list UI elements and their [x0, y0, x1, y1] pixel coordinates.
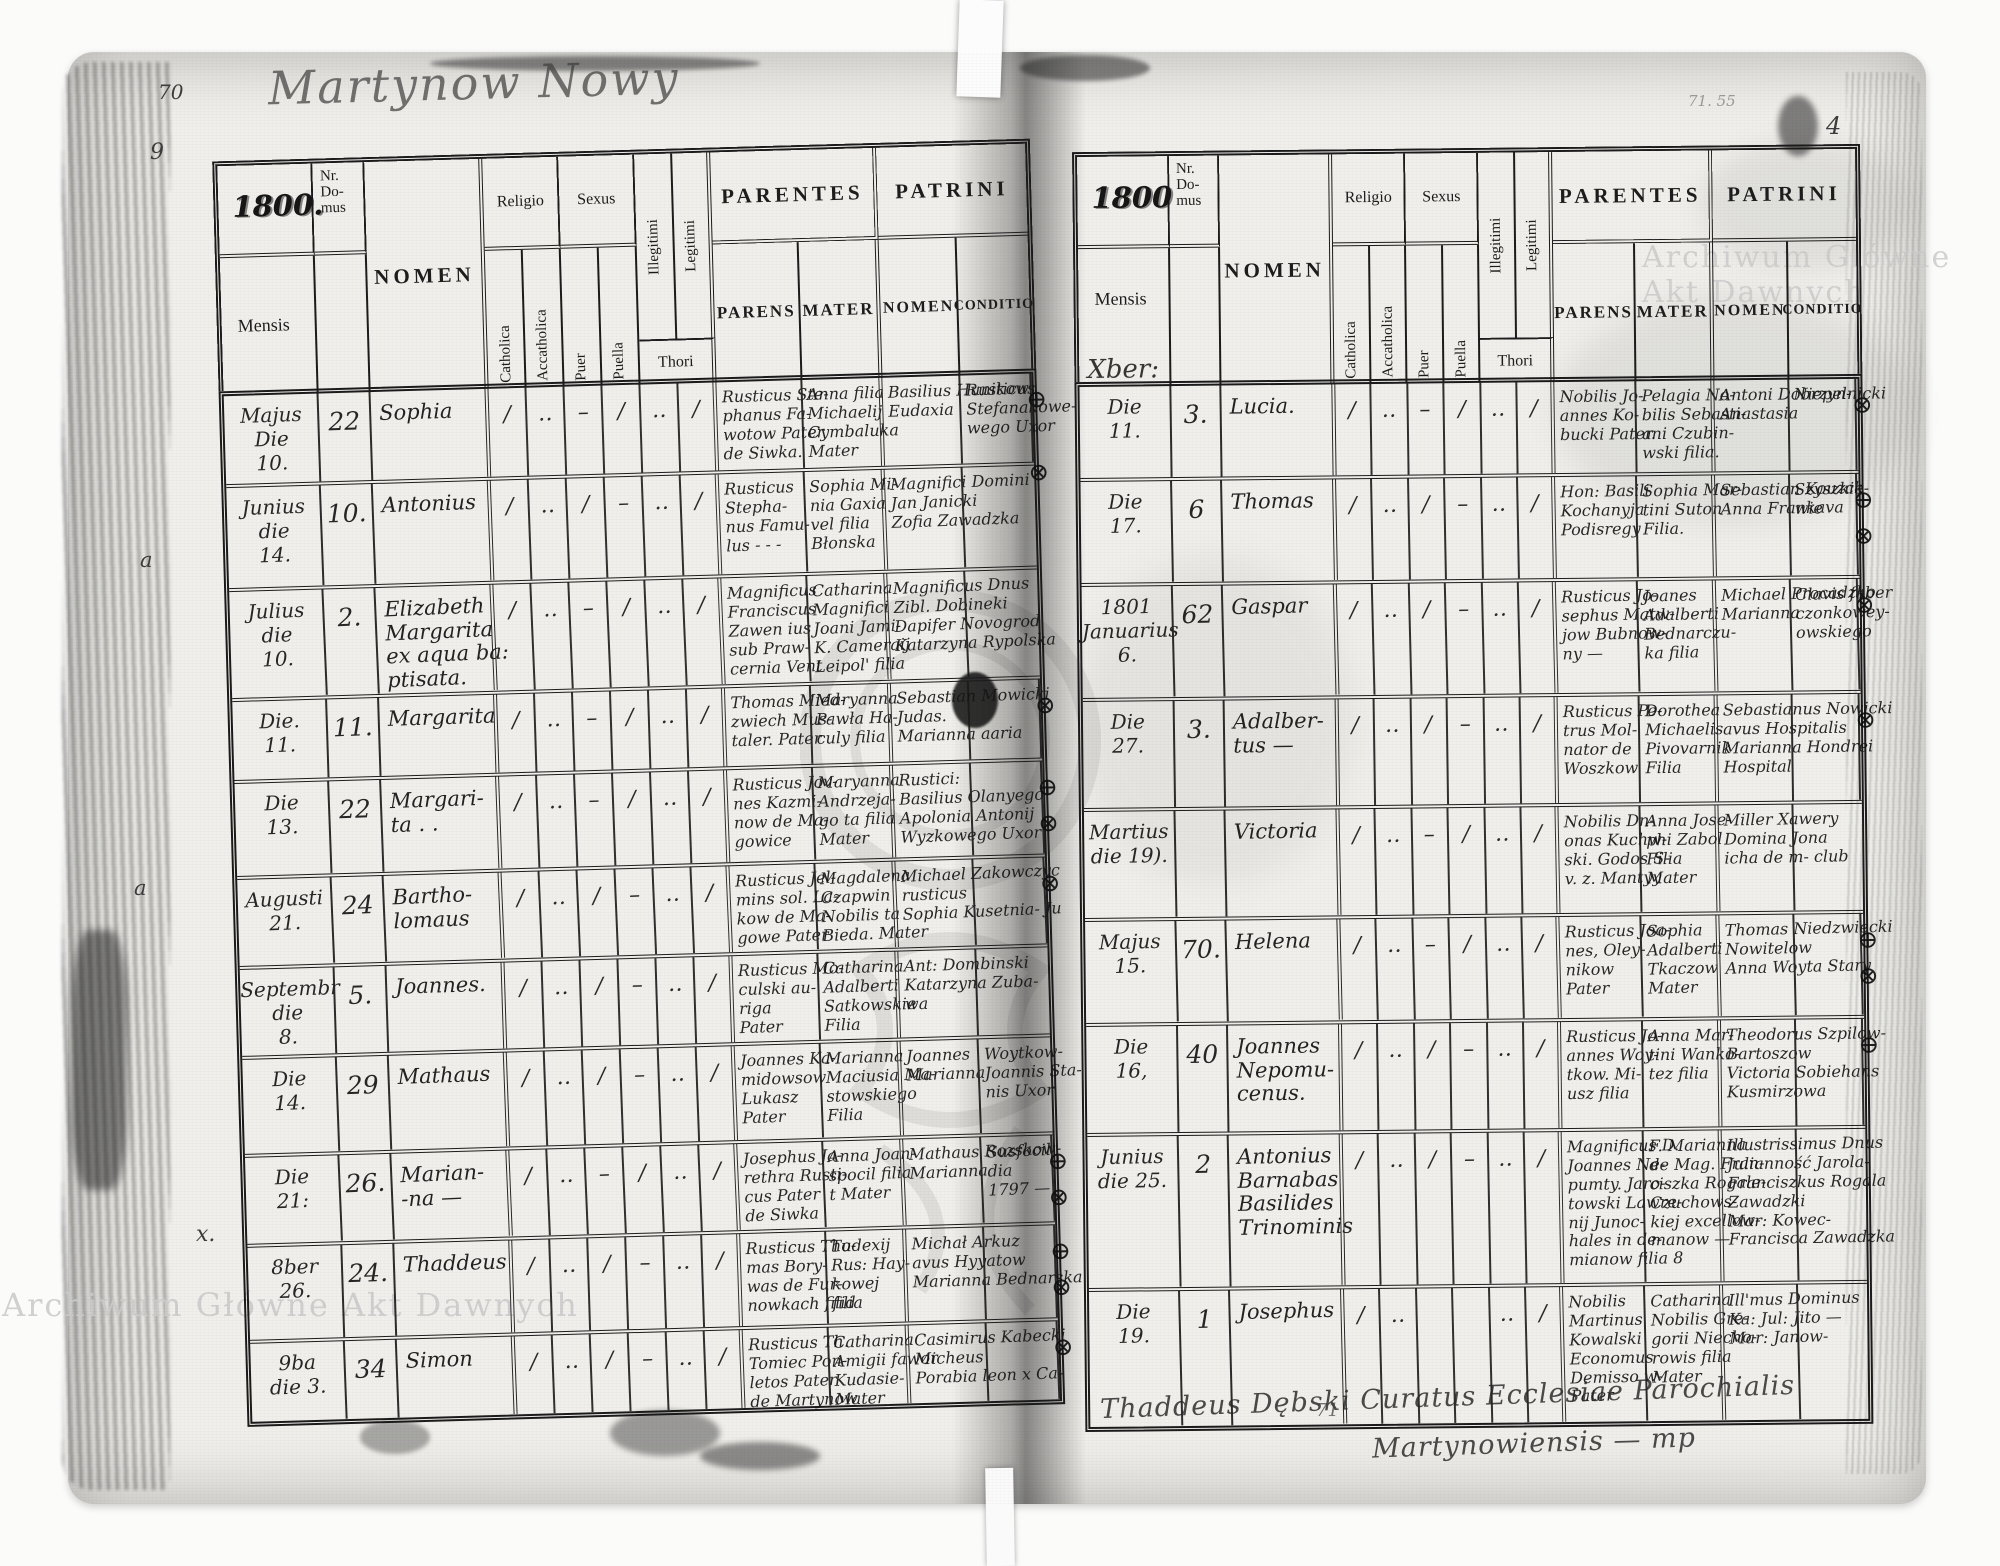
cell-mensis: Die 17. — [1080, 481, 1174, 584]
cell-mark-illegitimi: ‥ — [1486, 917, 1525, 1019]
cell-mark-accatholica: ‥ — [1374, 699, 1412, 806]
patrini-cell: PATRINI — [876, 144, 1027, 240]
cell-conditio: Niepelnicki — [1789, 379, 1859, 471]
cell-mensis: Die 13. — [234, 781, 333, 876]
cell-mark-puella: ∕ — [1444, 383, 1482, 475]
register-row: Die 17.6Thomas∕‥∕–‥∕Hon: Basili Kochanyj… — [1080, 474, 1859, 587]
patrini-label: PATRINI — [1727, 181, 1841, 207]
puer-label: Puer — [573, 352, 591, 380]
cell-nomen: Antonius Barnabas Basilides Trinominis — [1228, 1134, 1344, 1287]
patrini-nomen-cell: NOMEN — [1713, 242, 1789, 381]
cell-parens: Rusticus Jel- mins sol. La- kow de Ma- g… — [729, 863, 818, 953]
cell-parens: Rusticus Pe- trus Mol- nator de Woszkow — [1557, 696, 1641, 803]
cell-conditio — [986, 1321, 1060, 1402]
illegitimi-label: Illegitimi — [645, 218, 664, 274]
cell-mark-catholica: ∕ — [493, 583, 535, 690]
cell-mark-catholica: ∕ — [499, 775, 540, 868]
year-cell: 1800 — [1077, 156, 1170, 249]
illegitimi-cell: Illegitimi — [1478, 152, 1516, 337]
cell-nr-domus: 6 — [1172, 480, 1224, 582]
cell-mark-illegitimi: ‥ — [651, 771, 692, 864]
cell-mater: Joanes Adalberti Bednarczu- ka filia — [1638, 580, 1718, 693]
puella-cell: Puella — [1443, 245, 1481, 383]
puella-cell: Puella — [599, 247, 641, 386]
cell-mark-catholica: ∕ — [507, 1051, 548, 1146]
parens-label: PARENS — [717, 301, 796, 323]
puella-label: Puella — [1453, 339, 1470, 377]
cell-nr-domus: 29 — [337, 1056, 392, 1152]
cell-conditio — [973, 857, 1048, 946]
cell-mark-catholica: ∕ — [488, 388, 529, 477]
cell-nomen: Marian- -na — — [391, 1150, 512, 1241]
cell-mark-puer: ∕ — [1415, 1133, 1454, 1285]
cell-patrini-nomen: Sebastian Kouzck Anna Frankava — [1715, 474, 1792, 576]
cell-conditio — [1797, 1283, 1869, 1420]
sexus-label: Sexus — [577, 190, 616, 209]
cell-mark-puella: – — [615, 868, 657, 956]
accatholica-label: Accatholica — [1379, 306, 1397, 378]
cell-parens: Magnificus Franciscus Zawen ius sub Praw… — [721, 575, 811, 684]
nr-domus-label: Nr. Do- mus — [313, 162, 364, 217]
legitimi-label: Legitimi — [682, 219, 700, 271]
cell-mensis: Augusti 21. — [237, 877, 336, 967]
accatholica-label: Accatholica — [534, 309, 553, 381]
cell-nr-domus: 3. — [1174, 700, 1225, 807]
register-row: Die 16,40Joannes Nepomu- cenus.∕‥∕–‥∕Rus… — [1086, 1019, 1865, 1137]
cell-mark-accatholica: ‥ — [529, 478, 571, 579]
cell-mark-legitimi: ∕ — [1518, 477, 1556, 579]
cell-mark-accatholica: ‥ — [1378, 1024, 1416, 1131]
cell-mater: Sophia Adalberti Tkaczow Mater — [1641, 915, 1721, 1018]
parentes-cell: PARENTES — [1552, 150, 1713, 244]
cell-mark-accatholica: ‥ — [553, 1334, 594, 1413]
thori-cell: Thori — [639, 337, 716, 384]
cell-patrini-nomen: Magnificus Dnus Zibl. Dobineki Dapifer N… — [887, 571, 969, 680]
cell-mark-illegitimi: ‥ — [1485, 807, 1524, 914]
cell-mark-legitimi: ∕ — [1524, 1022, 1562, 1129]
cell-mensis: Die 16, — [1086, 1026, 1179, 1133]
puer-cell: Puer — [1406, 245, 1444, 383]
page-title-handwritten: Martynow Nowy — [267, 51, 680, 116]
cell-parens: Nobilis Dn- onas Kuchw- ski. Godos S- v.… — [1558, 806, 1642, 914]
thori-cell: Thori — [1480, 337, 1554, 383]
cell-patrini-nomen: Ant: Dombinski Katarzyna Zuba- wa — [899, 949, 979, 1037]
mater-label: MATER — [802, 299, 875, 321]
cell-parens: Rusticus Th. Tomiec Pon- letos Pater de … — [742, 1327, 830, 1408]
cell-mark-puella: – — [1451, 1023, 1489, 1130]
baptism-cross-mark: ⊗ — [1854, 587, 1875, 623]
baptism-cross-mark: ⊕ ⊗ — [1853, 482, 1875, 555]
mensis-cell: Mensis — [220, 256, 319, 397]
puella-label: Puella — [611, 341, 629, 379]
parens-label: PARENS — [1554, 302, 1633, 323]
cell-conditio: Susfocil dia 1797 — — [981, 1135, 1056, 1224]
cell-mark-puer: ∕ — [1409, 583, 1448, 695]
cell-parens: Rusticus Stepha- nus Famu- lus - - - — [718, 472, 807, 575]
cell-parens: Rusticus Jov- nes Kazmi- now de Ma- gowi… — [727, 768, 816, 863]
cell-mark-puer: – — [1413, 918, 1452, 1020]
cell-conditio — [984, 1225, 1058, 1319]
cell-mark-puella: ∕ — [1449, 918, 1488, 1020]
cell-mark-accatholica: ‥ — [545, 1050, 586, 1145]
patrini-nomen-cell: NOMEN — [879, 238, 960, 378]
left-page-register-table: 1800. Mensis Nr. Do- mus NOMEN Religio C… — [212, 139, 1065, 1427]
cell-mark-puella: ∕ — [602, 384, 643, 473]
cell-mark-puer: ∕ — [591, 1333, 632, 1412]
cell-mark-puer: ∕ — [1414, 1023, 1452, 1130]
cell-nr-domus: 40 — [1178, 1025, 1229, 1132]
nr-domus-label: Nr. Do- mus — [1169, 156, 1217, 210]
cell-patrini-nomen: Michał Arkuz avus Hyyatow Marianna Bedna… — [906, 1227, 986, 1321]
table-header: 1800. Mensis Nr. Do- mus NOMEN Religio C… — [212, 139, 1036, 392]
puer-cell: Puer — [561, 248, 603, 387]
cell-parens: Rusticus Jo- annes Woy- tkow. Mi- usz fi… — [1561, 1021, 1645, 1128]
cell-mark-illegitimi: ‥ — [661, 1145, 703, 1233]
register-row: Die 27.3.Adalber- tus —∕‥∕–‥∕Rusticus Pe… — [1083, 694, 1862, 812]
cell-patrini-nomen: Rustici: Basilius Olanyego Apolonia Anto… — [893, 763, 974, 858]
cell-nomen: Mathaus — [389, 1052, 510, 1150]
folio-number-right: 4 — [1826, 112, 1841, 140]
cell-mark-catholica: ∕ — [1342, 1134, 1381, 1286]
nomen-cell: NOMEN — [1219, 154, 1335, 385]
sexus-cell: Sexus — [1405, 153, 1479, 246]
cell-conditio — [969, 679, 1043, 759]
cell-mark-legitimi: ∕ — [694, 956, 735, 1043]
cell-mark-illegitimi: ‥ — [656, 957, 697, 1044]
cell-patrini-nomen: Mathaus Rozskow- Marianna — [903, 1137, 984, 1226]
cell-nomen: Helena — [1226, 919, 1342, 1023]
cell-mark-legitimi: ∕ — [678, 382, 719, 471]
cell-mater: Sophia Mar- tini Suton Filia. — [1637, 475, 1717, 577]
cell-mater: Marianna Maciusia Ma- stowskiego Filia — [820, 1041, 904, 1138]
cell-nr-domus: 26. — [340, 1153, 395, 1241]
cell-mark-legitimi: ∕ — [1522, 917, 1561, 1019]
cell-mensis: Junius die 25. — [1087, 1136, 1182, 1289]
cell-mater: Dorothea Michaelis Pivovarnik Filia — [1640, 695, 1719, 802]
cell-parens: Magnificus D. Joannes Ne- pumty. Jaro- t… — [1561, 1131, 1646, 1284]
cell-conditio — [1793, 804, 1863, 911]
bookmark-ribbon-bottom — [985, 1468, 1015, 1566]
cell-mark-legitimi: ∕ — [691, 866, 733, 954]
cell-mark-puer: ∕ — [583, 1049, 624, 1144]
cell-mark-illegitimi: ‥ — [1487, 1022, 1525, 1129]
catholica-cell: Catholica — [1333, 246, 1371, 384]
scanned-register-spread: Martynow Nowy 70 9 a a x. 71. 55 4 Archi… — [0, 0, 2000, 1566]
cell-mensis: 1801 Januarius 6. — [1081, 585, 1175, 698]
mater-cell: MATER — [1635, 242, 1714, 381]
thori-label: Thori — [1497, 352, 1533, 370]
religio-label: Religio — [1345, 189, 1392, 207]
cell-nomen: Margari- ta . . — [381, 776, 502, 872]
cell-mensis: Die. 11. — [232, 699, 330, 780]
cell-mark-accatholica: ‥ — [526, 387, 567, 476]
cell-parens: Josephus Ja- rethra Rusti- cus Pater de … — [737, 1141, 826, 1231]
corner-note-right: 71. 55 — [1688, 92, 1736, 110]
patrini-nomen-label: NOMEN — [1714, 302, 1786, 321]
sexus-label: Sexus — [1422, 188, 1460, 206]
book-left-rough-edge — [62, 62, 170, 1490]
cell-mark-puella: – — [626, 1236, 667, 1329]
cell-nr-domus: 34 — [345, 1339, 400, 1419]
patrini-label: PATRINI — [895, 176, 1009, 204]
cell-mark-illegitimi: ‥ — [659, 1047, 700, 1142]
baptism-cross-mark: ⊕ — [1858, 1027, 1879, 1063]
cell-patrini-nomen: Theodorus Szpilow- Bartoszow Victoria So… — [1721, 1019, 1797, 1126]
register-row: Junius die 25.2Antonius Barnabas Basilid… — [1087, 1129, 1867, 1292]
cell-conditio — [971, 761, 1045, 856]
cell-patrini-nomen: Illustrissimus Dnus Julianność Jarola- F… — [1721, 1129, 1799, 1281]
parentes-label: PARENTES — [1559, 182, 1702, 208]
conditio-cell: CONDITIO — [1788, 241, 1858, 380]
mater-label: MATER — [1637, 301, 1709, 322]
cell-nr-domus: 22 — [319, 392, 373, 482]
cell-mensis: Die 27. — [1083, 701, 1176, 808]
cell-mark-illegitimi: ‥ — [1481, 477, 1519, 579]
cell-mater: F. Marianna de Mag. Fran- ciszka Rogale-… — [1644, 1130, 1725, 1282]
catholica-label: Catholica — [1343, 321, 1361, 379]
catholica-cell: Catholica — [485, 250, 527, 389]
cell-mark-legitimi: ∕ — [1519, 582, 1558, 694]
cell-mark-catholica: ∕ — [1338, 699, 1376, 806]
cell-mark-puer: – — [575, 773, 616, 866]
cell-mark-catholica: ∕ — [504, 961, 545, 1048]
cell-nr-domus: 11. — [327, 698, 381, 778]
cell-conditio — [1794, 913, 1865, 1016]
cell-conditio — [1792, 694, 1862, 801]
cell-parens: Rusticus Mo- culski au- riga Pater — [732, 954, 820, 1043]
illegitimi-cell: Illegitimi — [634, 154, 677, 340]
baptism-cross-mark: ⊗ — [1039, 865, 1061, 902]
cell-mark-catholica: ∕ — [509, 1149, 551, 1237]
cell-mark-puella: ∕ — [1448, 808, 1487, 915]
cell-mark-legitimi: ∕ — [1521, 807, 1560, 914]
cell-mark-catholica: ∕ — [491, 480, 533, 581]
cell-mark-puer: ∕ — [567, 477, 609, 578]
year-cell: 1800. — [217, 164, 315, 259]
cell-mark-illegitimi: ‥ — [645, 579, 687, 686]
cell-mater: Catharina Adalberti Satkowskie Filia — [818, 951, 901, 1039]
cell-mark-puer: ∕ — [580, 959, 621, 1046]
cell-mark-puella: – — [621, 1048, 662, 1143]
cell-mark-puella: – — [1446, 583, 1485, 695]
cell-mater: Anna filia Michaelij Cymbaluka Mater — [802, 378, 886, 468]
cell-conditio — [962, 465, 1037, 568]
cell-nr-domus: 10. — [321, 484, 376, 586]
cell-nr-domus: 24 — [332, 876, 387, 964]
cell-mensis: Martius die 19). — [1083, 811, 1177, 919]
cell-patrini-nomen: Sebastianus Nowicki avus Hospitalis Mari… — [1717, 694, 1793, 801]
baptism-cross-mark: ⊗ — [1855, 702, 1876, 738]
cell-mater: Sophia Mi- nia Gaxia vel filia Błonska — [804, 469, 888, 572]
cell-mark-puer: ∕ — [588, 1237, 629, 1330]
cell-mark-puer: – — [585, 1147, 627, 1235]
nr-domus-cell-lower — [315, 254, 371, 393]
patrini-cell: PATRINI — [1712, 149, 1856, 242]
baptism-cross-mark: ⊕ ⊗ — [1047, 1143, 1070, 1216]
sexus-cell: Sexus — [558, 155, 636, 249]
register-row: Die 11.3.Lucia.∕‥–∕‥∕Nobilis Jo- annes K… — [1079, 379, 1858, 482]
cell-conditio: Szyszkie- wie — [1789, 474, 1859, 576]
cell-mark-illegitimi: ‥ — [667, 1331, 708, 1410]
cell-nr-domus: 70. — [1176, 920, 1228, 1022]
cell-mater: Catharina Amigii fawor Kudasie- Mater — [828, 1325, 912, 1406]
catholica-label: Catholica — [496, 325, 515, 383]
cell-mark-catholica: ∕ — [1335, 479, 1373, 581]
cell-nomen: Thaddeus — [394, 1240, 515, 1336]
cell-mark-puer: ∕ — [577, 869, 619, 957]
cell-mark-illegitimi: ‥ — [1481, 382, 1519, 474]
cell-patrini-nomen: Magnifici Domini Jan Janicki Zofia Zawad… — [885, 467, 966, 570]
cell-mater: Pelagia No- bilis Sebasti- ani Czubin- w… — [1636, 380, 1715, 472]
cell-parens: Hon: Basili Kochanyja Podisregy — [1555, 476, 1639, 579]
cell-nomen: Joannes. — [387, 962, 508, 1052]
margin-note: 9 — [150, 140, 164, 165]
cell-nomen: Thomas — [1222, 479, 1337, 582]
baptism-cross-mark: ⊕ ⊗ — [1037, 769, 1060, 842]
cell-mark-catholica: ∕ — [1336, 584, 1375, 696]
cell-patrini-nomen: Casimirus Kabecki Micheus Porabia leon x… — [909, 1323, 989, 1404]
cell-nr-domus: 5. — [335, 966, 389, 1054]
cell-conditio: Rusticus Stefanakowe- wego Uxor — [960, 374, 1034, 464]
cell-mark-puella: – — [1447, 698, 1485, 805]
table-header: 1800 Mensis Xber: Nr. Do- mus NOMEN Reli… — [1072, 144, 1862, 382]
parentes-label: PARENTES — [721, 180, 864, 209]
register-row: Majus 15.70.Helena∕‥–∕‥∕Rusticus Joa- ne… — [1085, 914, 1864, 1027]
cell-patrini-nomen: Sebastian Mowicki Judas. Marianna aaria — [891, 681, 971, 761]
cell-mater: Anna Jose- phi Zabol Filia Mater — [1640, 805, 1720, 912]
cell-conditio — [1795, 1019, 1865, 1126]
cell-mark-legitimi: ∕ — [697, 1046, 738, 1141]
cell-mensis: 8ber 26. — [247, 1245, 345, 1340]
cell-mark-accatholica: ‥ — [1378, 1133, 1417, 1285]
cell-mater: Tudexij Rus: Hay- kowej filia — [826, 1229, 910, 1323]
cell-nomen: Bartho- lomaus — [384, 872, 505, 963]
nomen-cell: NOMEN — [364, 159, 488, 392]
cell-conditio: Woytkow- Joannis Sta- nis Uxor — [978, 1037, 1052, 1134]
conditio-label: CONDITIO — [1782, 302, 1863, 319]
cell-mark-legitimi: ∕ — [699, 1144, 741, 1232]
cell-parens: Rusticus Tho- mas Bory- was de Fur- nowk… — [740, 1232, 828, 1327]
conditio-cell: CONDITIO — [956, 236, 1031, 376]
cell-patrini-nomen: Miller Xawery Domina Jona icha de m- clu… — [1718, 804, 1795, 911]
cell-mark-legitimi: ∕ — [1517, 382, 1555, 474]
cell-mark-accatholica: ‥ — [550, 1238, 591, 1331]
cell-nomen: Simon — [397, 1336, 518, 1418]
cell-mark-catholica: ∕ — [1334, 384, 1372, 476]
cell-mensis: Majus Die 10. — [224, 393, 322, 484]
cell-mater: Magdalena Czapwin Nobilis ta Bieda. Mate… — [815, 861, 899, 950]
cell-mater: Maryanna Pawła Ha- culy filia — [810, 684, 893, 764]
table-body: Die 11.3.Lucia.∕‥–∕‥∕Nobilis Jo- annes K… — [1074, 374, 1873, 1432]
cell-mark-accatholica: ‥ — [547, 1148, 589, 1236]
table-body: Majus Die 10.22Sophia∕‥–∕‥∕Rusticus Ste-… — [219, 368, 1066, 1426]
cell-mark-accatholica: ‥ — [1375, 808, 1414, 915]
nomen-label: NOMEN — [1224, 257, 1325, 283]
cell-parens: Thomas Mied- zwiech Mus- taler. Pater — [725, 686, 813, 767]
cell-mensis: Die 14. — [242, 1057, 341, 1154]
cell-nr-domus: 62 — [1173, 585, 1225, 697]
baptism-cross-mark: ⊕ ⊗ — [1857, 922, 1879, 995]
conditio-label: CONDITIO — [954, 297, 1035, 315]
cell-parens: Joannes Ka- midowsow Lukasz Pater — [734, 1043, 823, 1140]
baptism-cross-mark: ⊕ ⊗ — [1049, 1233, 1072, 1306]
cell-mark-puella: ∕ — [623, 1146, 665, 1234]
cell-mark-accatholica: ‥ — [531, 582, 573, 689]
cell-mark-puella: ∕ — [613, 772, 654, 865]
cell-nomen: Gaspar — [1222, 584, 1338, 698]
cell-conditio — [965, 569, 1040, 678]
cell-mark-illegitimi: ‥ — [643, 475, 685, 576]
puer-label: Puer — [1416, 350, 1433, 378]
cell-nomen: Joannes Nepomu- cenus. — [1228, 1024, 1343, 1132]
cell-mark-puella: – — [1445, 478, 1483, 580]
nomen-label: NOMEN — [374, 262, 475, 290]
baptism-cross-mark: ⊗ — [1052, 1329, 1074, 1366]
cell-mark-puer: ∕ — [1411, 698, 1449, 805]
year-handwritten: 1800 — [1077, 156, 1167, 215]
accatholica-cell: Accatholica — [1370, 246, 1408, 384]
cell-conditio — [976, 947, 1050, 1035]
religio-label: Religio — [497, 192, 545, 211]
cell-parens: Nobilis Jo- annes Ko- bucki Pater. — [1554, 381, 1638, 473]
cell-nomen: Victoria — [1225, 809, 1341, 917]
cell-mark-legitimi: ∕ — [681, 474, 723, 575]
cell-mark-puella: – — [1452, 1133, 1491, 1285]
cell-mater: Anna Joan- spocil filia t Mater — [823, 1139, 907, 1228]
nr-domus-cell-lower — [1170, 248, 1221, 387]
cell-mark-puer: – — [573, 691, 613, 770]
margin-note: a — [140, 548, 153, 572]
cell-mark-accatholica: ‥ — [539, 870, 581, 958]
mensis-label: Mensis — [1078, 248, 1168, 310]
month-abbrev-handwritten: Xber: — [1087, 354, 1159, 385]
cell-mark-puer: – — [569, 581, 611, 688]
cell-mark-accatholica: ‥ — [1372, 478, 1410, 580]
cell-mark-catholica: ∕ — [512, 1239, 553, 1332]
margin-note: a — [134, 876, 147, 900]
patrini-nomen-label: NOMEN — [883, 298, 955, 318]
cell-mark-legitimi: ∕ — [683, 578, 725, 685]
cell-mark-illegitimi: ‥ — [1484, 697, 1522, 804]
cell-mark-legitimi: ∕ — [1525, 1132, 1564, 1284]
cell-mensis: Majus 15. — [1084, 920, 1178, 1023]
cell-mark-legitimi: ∕ — [689, 770, 730, 863]
cell-mark-illegitimi: ‥ — [1482, 582, 1521, 694]
cell-parens: Rusticus Joa- nes, Oley- nikow Pater — [1559, 916, 1644, 1019]
parentes-cell: PARENTES — [710, 148, 879, 245]
cell-parens: Rusticus Jo- sephus Matw- jow Bubnow- ny… — [1555, 581, 1640, 694]
folio-number-left: 70 — [158, 80, 183, 104]
legitimi-cell: Legitimi — [1515, 152, 1553, 337]
cell-mater: Catharina Magnifici Joani Jami- K. Camer… — [807, 573, 892, 682]
footer-folio-number: 71 — [1316, 1400, 1339, 1421]
cell-mark-catholica: ∕ — [1339, 809, 1378, 916]
cell-mark-catholica: ∕ — [1340, 919, 1379, 1021]
cell-mark-illegitimi: ‥ — [640, 383, 681, 472]
cell-mark-illegitimi: ‥ — [1488, 1132, 1527, 1284]
cell-nomen: Elizabeth Margarita ex aqua ba: ptisata. — [375, 584, 497, 695]
illegitimi-label: Illegitimi — [1488, 217, 1506, 273]
year-handwritten: 1800. — [217, 164, 312, 225]
cell-patrini-nomen: Thomas Niedzwiecki Nowitelow Anna Woyta … — [1719, 914, 1796, 1017]
cell-mensis: Julius die 10. — [228, 589, 328, 699]
cell-mater: Anna Mar- tini Wanko- tez filia — [1643, 1020, 1722, 1127]
cell-mater: Maryanna Andrzeja- go ta filia Mater — [812, 765, 896, 860]
right-page-register-table: 1800 Mensis Xber: Nr. Do- mus NOMEN Reli… — [1072, 144, 1873, 1432]
cell-nr-domus: 24. — [343, 1244, 398, 1338]
baptism-cross-mark: ⊕ ⊗ — [1026, 381, 1050, 490]
baptism-cross-mark: ⊗ — [1034, 687, 1056, 724]
